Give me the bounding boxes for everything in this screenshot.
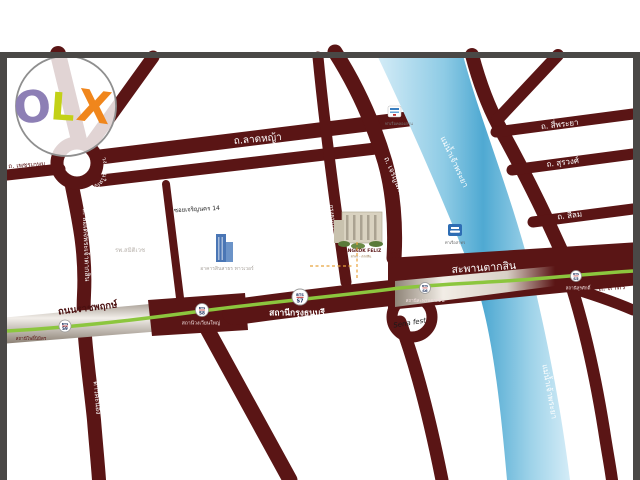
frame-top <box>0 52 640 58</box>
olx-letter-o: O <box>11 80 54 135</box>
label-sinn-sathorn-tower: อาคารสินสาธร ทาวเวอร์ <box>200 265 254 272</box>
station-label-wongwian-yai: สถานีวงเวียนใหญ่ <box>182 320 220 327</box>
feliz-block-side <box>334 220 344 243</box>
frame-left <box>0 52 7 480</box>
feliz-window-strip <box>360 215 363 240</box>
bts-badge-text: BTS <box>296 293 304 297</box>
frame-right <box>633 52 640 480</box>
station-label-saphan-taksin: สถานีสะพานตากสิน <box>406 298 445 304</box>
bangkok-map: O L X ถ. เพชรเกษม วงเวียนใหญ่ ถ.ลาดหญ้า … <box>0 0 640 480</box>
pier-east-box <box>448 224 462 236</box>
station-code-s5: S5 <box>573 276 579 281</box>
tower-block-side <box>226 242 233 262</box>
khlong-san-pier-icon <box>388 106 401 117</box>
station-code-s6: S6 <box>422 288 428 293</box>
map-screenshot: O L X ถ. เพชรเกษม วงเวียนใหญ่ ถ.ลาดหญ้า … <box>0 0 640 480</box>
label-bangkok-feliz: BANGKOK FELIZ <box>341 248 382 254</box>
station-code-s7: S7 <box>296 299 304 305</box>
tower-window <box>218 237 220 260</box>
station-label-krung-thonburi: สถานีกรุงธนบุรี <box>269 308 325 319</box>
bts-badge-text: BTS <box>199 306 206 310</box>
feliz-window-strip <box>367 215 370 240</box>
sathorn-pier-icon <box>448 224 462 236</box>
feliz-tree <box>369 241 383 247</box>
pier-east-boat-hull <box>450 231 460 233</box>
pier-east-boat-top <box>451 227 459 229</box>
feliz-window-strip <box>374 215 377 240</box>
feliz-tree <box>338 241 350 247</box>
pier-west-mark <box>393 114 396 116</box>
label-pier-west: ท่าเรือคลองสาน <box>385 121 413 126</box>
label-samitivej-hospital: รพ.สมิติเวช <box>115 247 145 254</box>
tower-window <box>222 237 224 260</box>
pier-west-stripe <box>390 108 399 110</box>
label-sathorn: ถ. สาทร <box>598 282 626 293</box>
tower-block-main <box>216 234 226 262</box>
station-code-s9: S9 <box>62 326 68 331</box>
label-pier-east: ท่าเรือสาทร <box>445 240 466 245</box>
label-bangkok-feliz-sub: สาทร - ตากสิน <box>351 255 372 259</box>
station-code-s8: S8 <box>199 311 205 316</box>
olx-letter-l: L <box>49 84 76 130</box>
feliz-window-strip <box>346 215 349 240</box>
pier-west-stripe <box>390 112 399 114</box>
feliz-window-strip <box>353 215 356 240</box>
olx-letter-x: X <box>74 80 115 135</box>
